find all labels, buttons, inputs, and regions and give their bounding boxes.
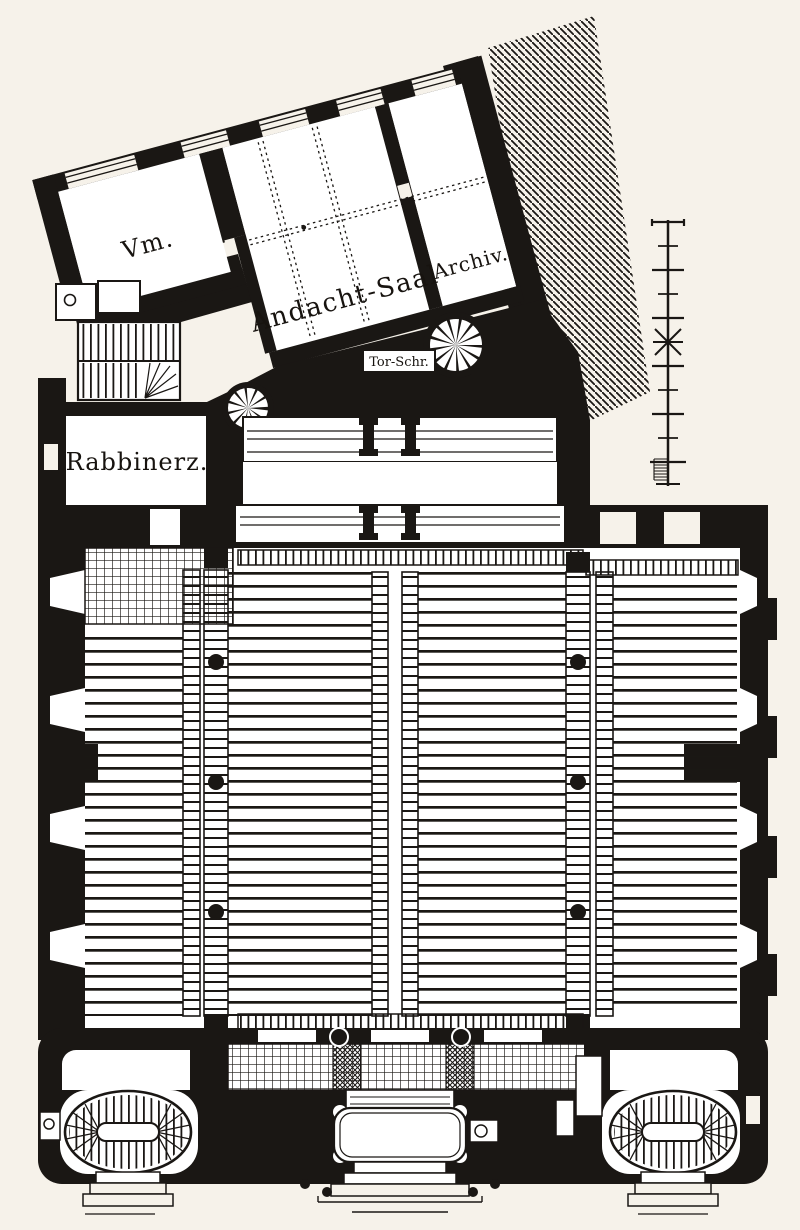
dogleg-staircase <box>78 322 180 400</box>
pews-center-right <box>418 572 566 1016</box>
entrance-cartouche <box>334 1108 466 1162</box>
door-opening <box>150 509 180 545</box>
north-seat-band <box>238 550 583 565</box>
pews-west-aisle <box>85 628 183 1016</box>
pews-center-left <box>228 572 372 1016</box>
pews-east-aisle <box>613 582 737 1014</box>
oval-stair-west <box>65 1091 191 1173</box>
label-tor-schr: Tor-Schr. <box>369 355 429 370</box>
vestibule-zone <box>38 1028 768 1214</box>
upper-portal-steps <box>243 417 557 466</box>
label-rabbinerz: Rabbinerz. <box>66 448 209 476</box>
main-hall <box>38 505 777 1040</box>
oval-stair-east <box>610 1091 736 1173</box>
floor-plan-figure: Vm. Andacht-Saal Archiv. Tor-Schr. <box>0 0 800 1230</box>
portal-corridor <box>243 462 557 505</box>
south-seat-band <box>238 1014 583 1029</box>
west-corridor <box>62 1050 190 1090</box>
mosaic-floor <box>228 1044 585 1090</box>
floor-plan-canvas: Vm. Andacht-Saal Archiv. Tor-Schr. <box>0 0 800 1230</box>
east-corridor <box>610 1050 738 1090</box>
tor-schr-box: Tor-Schr. <box>363 350 435 372</box>
lower-portal-steps <box>235 505 565 543</box>
